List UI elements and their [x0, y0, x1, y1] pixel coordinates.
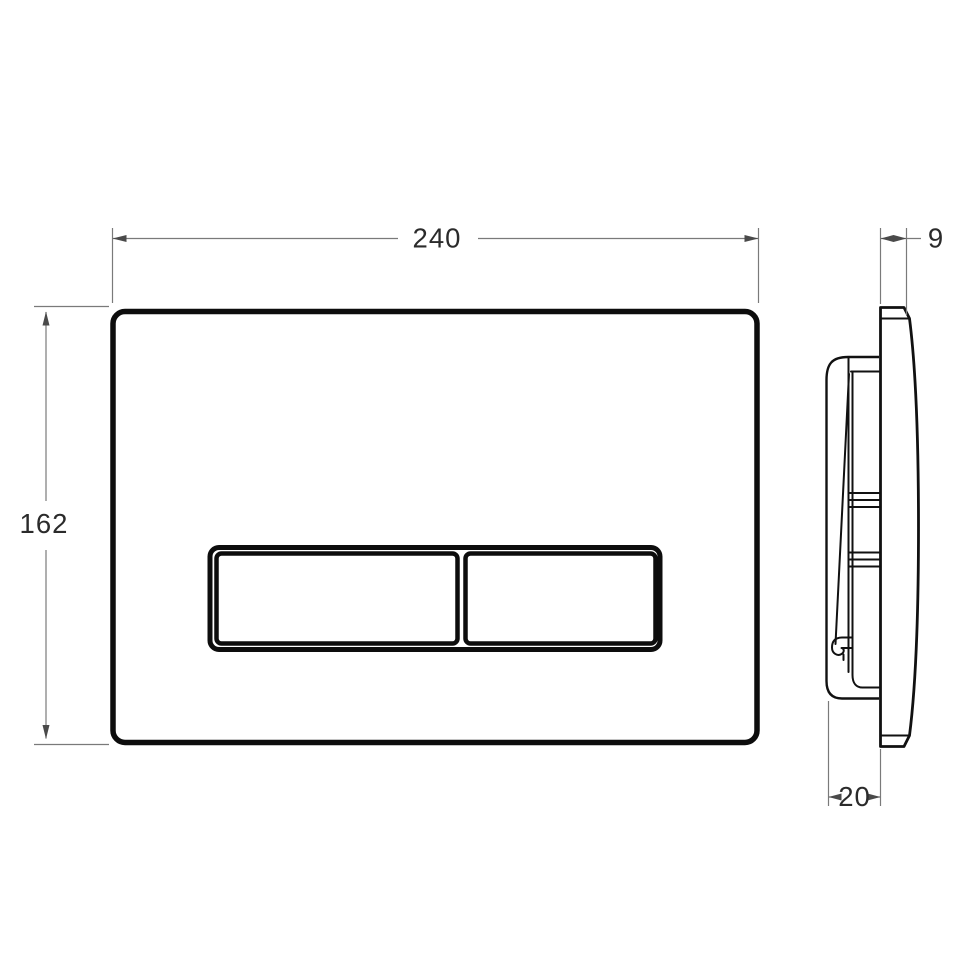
front-view	[113, 312, 757, 743]
side-plate-profile	[881, 308, 919, 747]
side-frame-taper-line	[836, 374, 850, 644]
dimension-height-label: 162	[20, 508, 69, 539]
dimension-thickness-label: 9	[928, 223, 944, 254]
plate-outline	[113, 312, 757, 743]
side-view	[827, 308, 919, 747]
arrow-right-icon	[745, 235, 759, 242]
dimension-depth-label: 20	[838, 781, 871, 812]
dimension-width-label: 240	[413, 223, 462, 254]
arrow-right-icon	[894, 235, 907, 242]
large-flush-button	[217, 554, 458, 644]
small-flush-button	[466, 554, 656, 644]
dimension-thickness: 9	[881, 223, 945, 316]
dimension-height: 162	[20, 307, 109, 745]
arrow-down-icon	[43, 725, 50, 739]
arrow-up-icon	[43, 312, 50, 326]
dimension-width: 240	[113, 223, 759, 304]
technical-drawing-page: 240 162 9 20	[0, 0, 975, 977]
arrow-left-icon	[113, 235, 127, 242]
technical-drawing-canvas: 240 162 9 20	[0, 0, 975, 977]
arrow-left-icon	[881, 235, 894, 242]
side-mechanism-lines	[849, 493, 880, 567]
side-frame-inner-wall-b	[853, 372, 880, 688]
dimension-depth: 20	[829, 701, 881, 812]
